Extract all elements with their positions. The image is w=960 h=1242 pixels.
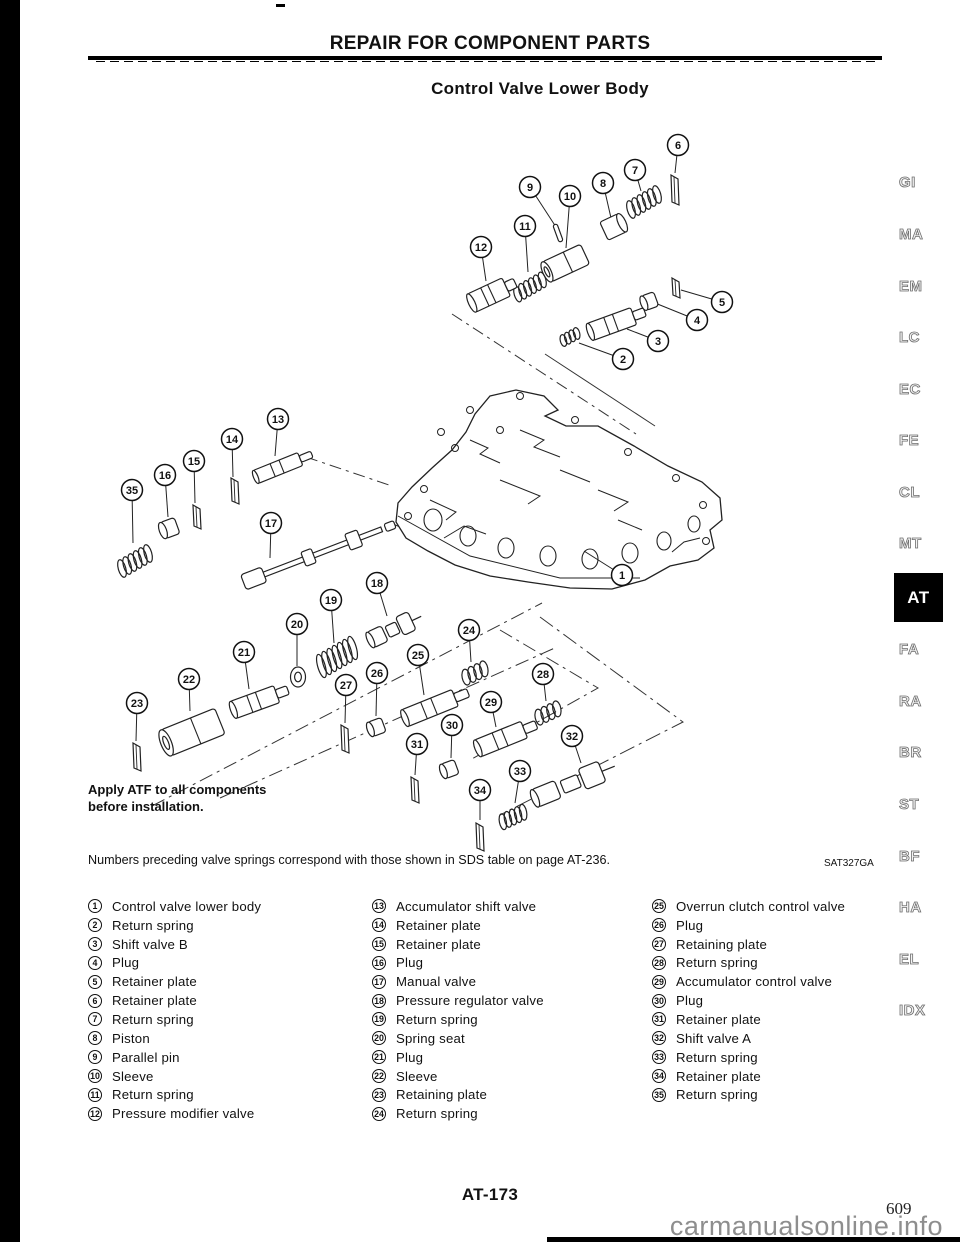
part-plate [672,278,680,298]
part-number-badge: 26 [652,918,666,932]
parts-list-item-30: 30Plug [652,991,930,1010]
part-plate [411,777,419,803]
svg-text:13: 13 [272,414,284,426]
part-spring [494,802,531,832]
part-label: Return spring [676,955,758,970]
part-plate [231,478,239,504]
callout-30: 30 [442,715,463,736]
part-label: Pressure modifier valve [112,1106,254,1121]
part-valve [472,716,540,757]
sds-footnote: Numbers preceding valve springs correspo… [88,853,610,867]
part-number-badge: 1 [88,899,102,913]
part-label: Overrun clutch control valve [676,899,845,914]
part-plug [438,759,459,779]
svg-text:1: 1 [619,570,625,582]
svg-text:6: 6 [675,140,681,152]
svg-text:2: 2 [620,354,626,366]
callout-1: 1 [612,565,633,586]
part-label: Accumulator control valve [676,974,832,989]
svg-text:16: 16 [159,470,171,482]
parts-list-item-19: 19Return spring [372,1010,650,1029]
parts-list-item-6: 6Retainer plate [88,991,366,1010]
parts-list-item-16: 16Plug [372,954,650,973]
svg-text:34: 34 [474,785,487,797]
svg-text:19: 19 [325,595,337,607]
part-number-badge: 11 [88,1088,102,1102]
svg-text:27: 27 [340,680,352,692]
parts-list-item-33: 33Return spring [652,1048,930,1067]
svg-text:21: 21 [238,647,250,659]
callout-2: 2 [613,349,634,370]
part-number-badge: 19 [372,1012,386,1026]
parts-list-item-29: 29Accumulator control valve [652,972,930,991]
callout-26: 26 [367,663,388,684]
part-label: Retainer plate [112,974,197,989]
figure-code: SAT327GA [824,858,874,869]
parts-list-item-20: 20Spring seat [372,1029,650,1048]
callout-15: 15 [184,451,205,472]
parts-list-item-7: 7Return spring [88,1010,366,1029]
part-valve [251,448,314,484]
page-title: REPAIR FOR COMPONENT PARTS [20,33,960,55]
part-label: Retainer plate [676,1012,761,1027]
parts-list-item-27: 27Retaining plate [652,935,930,954]
part-plate [193,505,201,529]
part-label: Retainer plate [112,993,197,1008]
parts-list-item-22: 22Sleeve [372,1067,650,1086]
part-mvalve [363,607,425,650]
section-title: Control Valve Lower Body [120,79,960,99]
part-label: Return spring [396,1012,478,1027]
part-label: Return spring [396,1106,478,1121]
part-number-badge: 24 [372,1107,386,1121]
part-valve [228,682,291,720]
parts-list-column-3: 25Overrun clutch control valve26Plug27Re… [652,897,930,1104]
atf-note-line1: Apply ATF to all components [88,781,266,798]
parts-list-item-14: 14Retainer plate [372,916,650,935]
part-number-badge: 21 [372,1050,386,1064]
callout-35: 35 [122,480,143,501]
sidebar-tab-mt: MT [899,535,949,553]
part-plate [671,175,679,205]
parts-list-item-21: 21Plug [372,1048,650,1067]
callout-9: 9 [520,177,541,198]
callout-11: 11 [515,216,536,237]
callout-25: 25 [408,645,429,666]
manual-page: REPAIR FOR COMPONENT PARTS Control Valve… [0,0,960,1242]
part-number-badge: 32 [652,1031,666,1045]
part-spring [621,183,667,220]
parts-list-item-31: 31Retainer plate [652,1010,930,1029]
callout-13: 13 [268,409,289,430]
part-spring [309,634,364,680]
valve-body [396,390,722,589]
callout-24: 24 [459,620,480,641]
part-number-badge: 13 [372,899,386,913]
parts-list-column-2: 13Accumulator shift valve14Retainer plat… [372,897,650,1123]
atf-note: Apply ATF to all components before insta… [88,781,266,815]
parts-list-item-11: 11Return spring [88,1085,366,1104]
svg-text:23: 23 [131,698,143,710]
part-label: Plug [396,1050,423,1065]
svg-text:10: 10 [564,191,576,203]
part-number-badge: 30 [652,994,666,1008]
callout-16: 16 [155,465,176,486]
parts-list-item-35: 35Return spring [652,1085,930,1104]
part-number-badge: 5 [88,975,102,989]
callout-8: 8 [593,173,614,194]
part-number-badge: 28 [652,956,666,970]
part-number-badge: 33 [652,1050,666,1064]
scan-left-border [0,0,20,1242]
part-number-badge: 12 [88,1107,102,1121]
callout-4: 4 [687,310,708,331]
callout-3: 3 [648,331,669,352]
sidebar-tab-fa: FA [899,641,949,659]
callout-19: 19 [321,590,342,611]
part-plate [133,743,141,771]
part-number-badge: 10 [88,1069,102,1083]
part-number-badge: 8 [88,1031,102,1045]
part-spring [457,658,493,687]
callout-33: 33 [510,761,531,782]
parts-list-item-25: 25Overrun clutch control valve [652,897,930,916]
atf-note-line2: before installation. [88,798,266,815]
svg-text:30: 30 [446,720,458,732]
svg-text:25: 25 [412,650,424,662]
svg-text:9: 9 [527,182,533,194]
svg-text:7: 7 [632,165,638,177]
part-valve [585,304,648,342]
parts-list-item-3: 3Shift valve B [88,935,366,954]
part-sleeve [539,244,590,283]
parts-list-column-1: 1Control valve lower body2Return spring3… [88,897,366,1123]
part-label: Plug [396,955,423,970]
part-number-badge: 22 [372,1069,386,1083]
sidebar-tab-fe: FE [899,432,949,450]
parts-list-item-15: 15Retainer plate [372,935,650,954]
part-number-badge: 25 [652,899,666,913]
svg-text:4: 4 [694,315,701,327]
part-plate [341,725,349,753]
sidebar-tab-lc: LC [899,329,949,347]
part-label: Retaining plate [676,937,767,952]
part-label: Retainer plate [676,1069,761,1084]
svg-text:14: 14 [226,434,239,446]
svg-text:35: 35 [126,485,138,497]
svg-text:12: 12 [475,242,487,254]
parts-list-item-23: 23Retaining plate [372,1085,650,1104]
parts-list-item-1: 1Control valve lower body [88,897,366,916]
part-label: Return spring [112,918,194,933]
scan-top-mark [276,4,285,7]
svg-text:8: 8 [600,178,606,190]
callout-29: 29 [481,692,502,713]
part-label: Plug [676,918,703,933]
svg-text:26: 26 [371,668,383,680]
parts-list-item-8: 8Piston [88,1029,366,1048]
part-number-badge: 17 [372,975,386,989]
callout-21: 21 [234,642,255,663]
part-number-badge: 2 [88,918,102,932]
part-label: Return spring [112,1087,194,1102]
parts-list-item-2: 2Return spring [88,916,366,935]
part-number-badge: 9 [88,1050,102,1064]
part-spring [556,326,583,349]
sidebar-tab-ec: EC [899,381,949,399]
part-spring [112,542,158,579]
part-label: Plug [676,993,703,1008]
sidebar-tab-at: AT [894,573,943,622]
part-label: Retainer plate [396,918,481,933]
callout-31: 31 [407,734,428,755]
callout-32: 32 [562,726,583,747]
parts-list-item-32: 32Shift valve A [652,1029,930,1048]
part-label: Shift valve B [112,937,188,952]
svg-text:20: 20 [291,619,303,631]
part-label: Return spring [676,1087,758,1102]
parts-list-item-34: 34Retainer plate [652,1067,930,1086]
part-number-badge: 29 [652,975,666,989]
part-washer [291,667,306,687]
part-piston [600,212,630,240]
callout-5: 5 [712,292,733,313]
sidebar-tab-st: ST [899,796,949,814]
part-number-badge: 23 [372,1088,386,1102]
callout-17: 17 [261,513,282,534]
part-number-badge: 4 [88,956,102,970]
svg-text:33: 33 [514,766,526,778]
part-number-badge: 34 [652,1069,666,1083]
part-plug [157,517,180,539]
part-number-badge: 16 [372,956,386,970]
svg-text:17: 17 [265,518,277,530]
part-number-badge: 6 [88,994,102,1008]
parts-list-item-17: 17Manual valve [372,972,650,991]
part-label: Accumulator shift valve [396,899,536,914]
callout-34: 34 [470,780,491,801]
part-label: Spring seat [396,1031,465,1046]
parts-list-item-4: 4Plug [88,954,366,973]
scan-bottom-border [547,1237,960,1242]
part-label: Return spring [676,1050,758,1065]
part-label: Shift valve A [676,1031,751,1046]
parts-list-item-13: 13Accumulator shift valve [372,897,650,916]
part-number-badge: 35 [652,1088,666,1102]
svg-text:32: 32 [566,731,578,743]
part-label: Plug [112,955,139,970]
page-number: AT-173 [20,1185,960,1205]
part-number-badge: 7 [88,1012,102,1026]
parts-list-item-26: 26Plug [652,916,930,935]
part-number-badge: 3 [88,937,102,951]
part-mvalve [528,756,619,810]
header-rule [88,56,882,60]
callout-10: 10 [560,186,581,207]
svg-text:18: 18 [371,578,383,590]
part-label: Pressure regulator valve [396,993,544,1008]
parts-list-item-5: 5Retainer plate [88,972,366,991]
part-label: Manual valve [396,974,476,989]
part-valve [465,274,520,314]
part-label: Parallel pin [112,1050,180,1065]
part-number-badge: 15 [372,937,386,951]
part-number-badge: 20 [372,1031,386,1045]
svg-text:29: 29 [485,697,497,709]
part-number-badge: 27 [652,937,666,951]
svg-text:3: 3 [655,336,661,348]
callout-18: 18 [367,573,388,594]
part-label: Piston [112,1031,150,1046]
callout-14: 14 [222,429,243,450]
header-rule-shadow [96,61,876,62]
svg-text:31: 31 [411,739,423,751]
parts-list-item-12: 12Pressure modifier valve [88,1104,366,1123]
part-plug [365,717,386,737]
exploded-diagram: 1234567891011121314151617181920212223242… [70,120,890,870]
callout-23: 23 [127,693,148,714]
callout-22: 22 [179,669,200,690]
parts-list-item-18: 18Pressure regulator valve [372,991,650,1010]
part-label: Sleeve [396,1069,438,1084]
svg-text:28: 28 [537,669,549,681]
part-number-badge: 14 [372,918,386,932]
sidebar-tab-cl: CL [899,484,949,502]
sidebar-tab-ra: RA [899,693,949,711]
parts-list-item-24: 24Return spring [372,1104,650,1123]
part-label: Control valve lower body [112,899,261,914]
callout-7: 7 [625,160,646,181]
sidebar-tab-bf: BF [899,848,949,866]
part-label: Retaining plate [396,1087,487,1102]
sidebar-tab-ma: MA [899,226,949,244]
part-label: Retainer plate [396,937,481,952]
callout-20: 20 [287,614,308,635]
svg-text:24: 24 [463,625,476,637]
parts-list-item-28: 28Return spring [652,954,930,973]
callout-6: 6 [668,135,689,156]
svg-text:11: 11 [519,221,531,233]
part-label: Sleeve [112,1069,154,1084]
sidebar-tab-br: BR [899,744,949,762]
svg-text:5: 5 [719,297,725,309]
part-plate [476,823,484,851]
callout-27: 27 [336,675,357,696]
part-number-badge: 31 [652,1012,666,1026]
parts-list-item-10: 10Sleeve [88,1067,366,1086]
parts-list-item-9: 9Parallel pin [88,1048,366,1067]
svg-text:15: 15 [188,456,200,468]
sidebar-tab-gi: GI [899,174,949,192]
part-sleeve [156,708,225,758]
callout-12: 12 [471,237,492,258]
part-pin [553,224,563,242]
part-label: Return spring [112,1012,194,1027]
svg-text:22: 22 [183,674,195,686]
sidebar-tab-em: EM [899,278,949,296]
callout-28: 28 [533,664,554,685]
part-number-badge: 18 [372,994,386,1008]
